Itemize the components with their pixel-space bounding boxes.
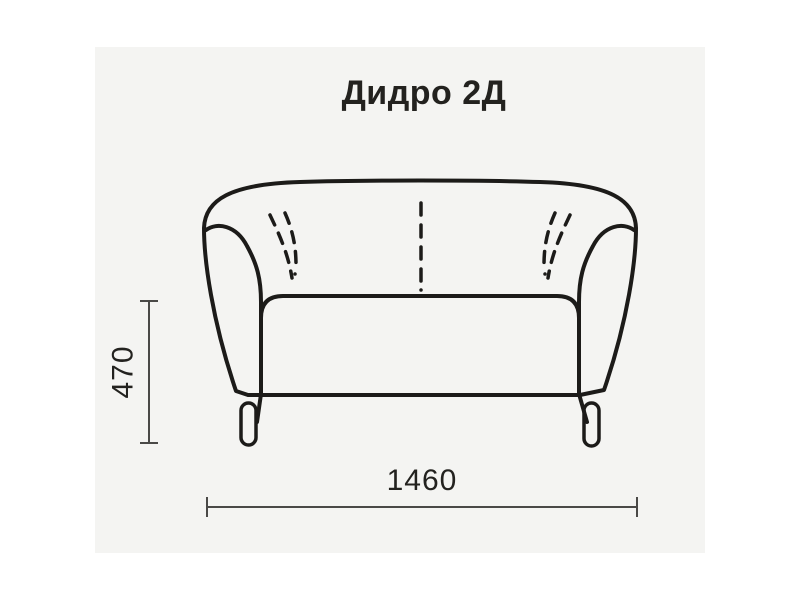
sofa-outline-group [204, 181, 636, 447]
height-dimension-label: 470 [107, 345, 140, 398]
dimension-labels-group: 470 1460 [107, 345, 458, 497]
stitch-lines-group [270, 203, 570, 290]
page: Дидро 2Д [0, 0, 800, 600]
front-right-leg [584, 403, 599, 446]
drawing-panel: Дидро 2Д [95, 47, 705, 553]
width-dimension-label: 1460 [387, 464, 458, 497]
sofa-dimension-diagram: 470 1460 [95, 47, 705, 553]
front-left-leg [241, 403, 256, 445]
seat-cushion-top-edge [261, 296, 579, 318]
left-arm-inner-edge [206, 226, 261, 422]
